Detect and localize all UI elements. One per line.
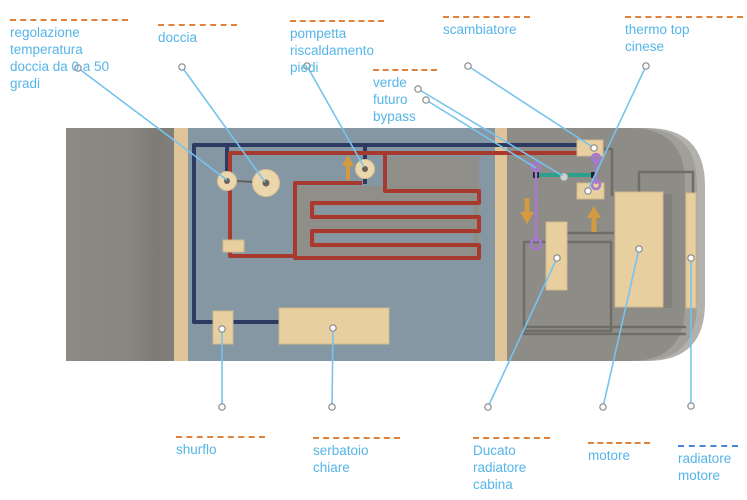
engine-shadow: [663, 194, 672, 308]
label-motore: motore: [588, 442, 650, 464]
wall-stripe-right: [495, 128, 507, 361]
label-pompetta-riscaldamento-piedi: pompetta riscaldamento piedi: [290, 20, 384, 76]
heat-exchanger: [577, 140, 603, 156]
leader-serbatoio: [332, 328, 333, 407]
wall-stripe-left: [174, 128, 188, 361]
label-ducato-radiatore-cabina: Ducato radiatore cabina: [473, 437, 550, 493]
label-serbatoio-chiare: serbatoio chiare: [313, 437, 400, 476]
label-scambiatore: scambiatore: [443, 16, 530, 38]
van-rear-section: [66, 128, 174, 361]
label-shurflo: shurflo: [176, 436, 265, 458]
label-verde-futuro-bypass: verde futuro bypass: [373, 69, 437, 125]
floor-panel-slot: [316, 234, 474, 242]
mixer-link: [236, 181, 254, 182]
floor-panel-slot: [316, 206, 474, 214]
label-regolazione-temperatura: regolazione temperatura doccia da 0 a 50…: [10, 19, 128, 92]
small-fixture: [223, 240, 244, 252]
diagram-canvas: regolazione temperatura doccia da 0 a 50…: [0, 0, 747, 500]
label-radiatore-motore: radiatore motore: [678, 445, 738, 484]
label-thermo-top-cinese: thermo top cinese: [625, 16, 743, 55]
pump-center: [362, 166, 368, 172]
label-doccia: doccia: [158, 24, 237, 46]
